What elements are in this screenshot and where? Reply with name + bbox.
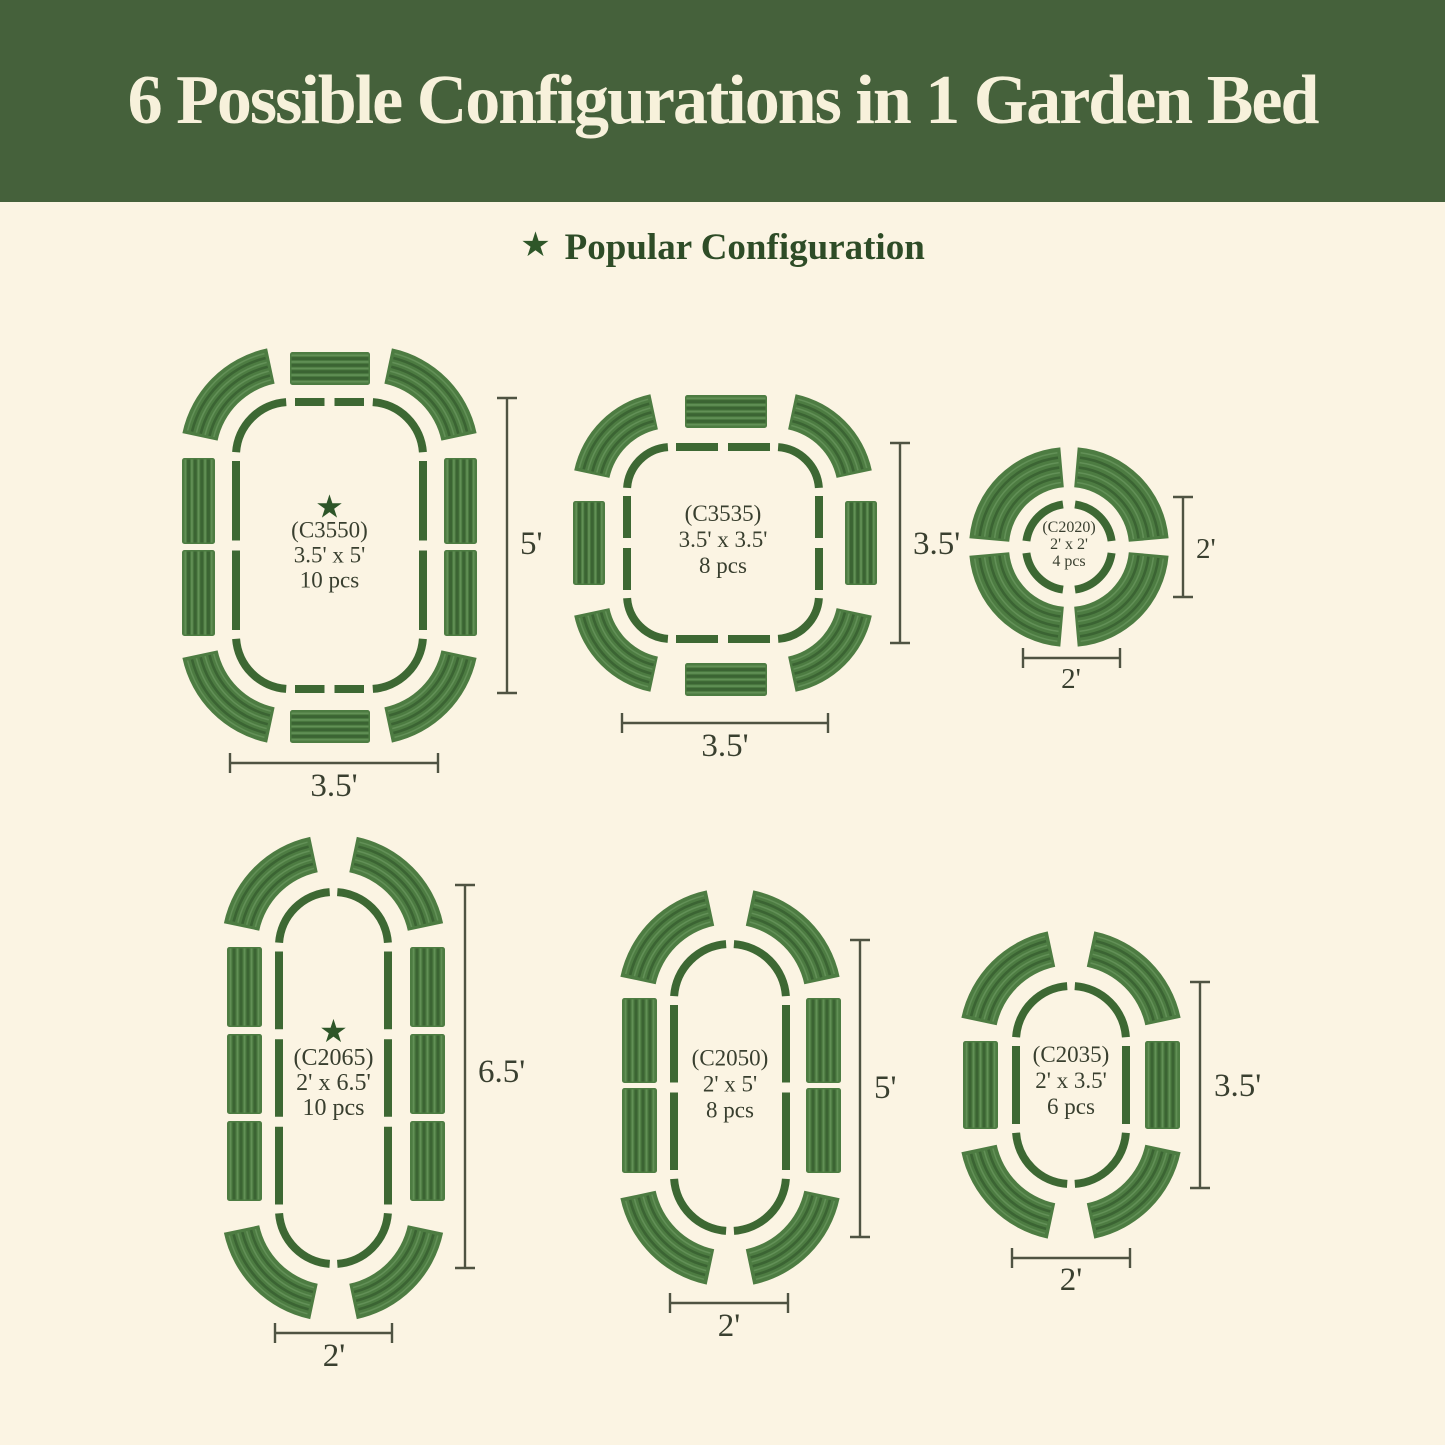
ribbed-panel-straight: [410, 1121, 445, 1201]
ribbed-panel-curved: [349, 1225, 443, 1319]
config-pieces: 4 pcs: [1052, 553, 1085, 570]
ribbed-panel-straight: [622, 998, 657, 1083]
config-c3535-diagram: 3.5'3.5'(C3535)3.5' x 3.5'8 pcs: [545, 350, 975, 805]
ribbed-panel-straight: [410, 947, 445, 1027]
ribbed-panel-straight: [410, 1034, 445, 1114]
dimension-line-vertical: [850, 940, 870, 1237]
ribbed-panel-curved: [224, 1225, 318, 1319]
ribbed-panel-curved: [224, 837, 318, 931]
ribbed-panel-straight: [444, 550, 477, 636]
config-c2035-diagram: 3.5'2'(C2035)2' x 3.5'6 pcs: [900, 900, 1275, 1325]
config-size: 2' x 6.5': [296, 1070, 371, 1096]
star-icon: ★: [520, 229, 550, 263]
config-code: (C3550): [291, 518, 368, 543]
config-c2050-diagram: 5'2'(C2050)2' x 5'8 pcs: [550, 860, 915, 1385]
config-size: 2' x 3.5': [1035, 1068, 1107, 1093]
ribbed-panel-straight: [1145, 1041, 1180, 1129]
popular-legend: ★ Popular Configuration: [0, 226, 1445, 270]
ribbed-panel-straight: [685, 395, 767, 428]
dimension-line-vertical: [1190, 982, 1210, 1188]
ribbed-panel-curved: [620, 890, 714, 984]
ribbed-panel-curved: [746, 1191, 840, 1285]
config-size: 2' x 5': [703, 1072, 757, 1097]
height-dimension-label: 2': [1196, 533, 1216, 565]
config-c2065-diagram: 6.5'2'★(C2065)2' x 6.5'10 pcs: [170, 830, 565, 1415]
ribbed-panel-curved: [961, 1145, 1055, 1239]
config-code: (C3535): [685, 501, 762, 526]
ribbed-panel-straight: [182, 458, 215, 544]
height-dimension-label: 6.5': [478, 1054, 525, 1090]
dimension-line-vertical: [455, 885, 475, 1268]
header-banner: 6 Possible Configurations in 1 Garden Be…: [0, 0, 1445, 202]
ribbed-panel-curved: [788, 608, 872, 692]
garden-bed-infographic: 6 Possible Configurations in 1 Garden Be…: [0, 0, 1445, 1445]
dimension-line-vertical: [497, 398, 517, 693]
dimension-line-vertical: [890, 443, 910, 643]
ribbed-panel-straight: [227, 1121, 262, 1201]
ribbed-panel-straight: [444, 458, 477, 544]
width-dimension-label: 2': [718, 1308, 740, 1344]
config-pieces: 10 pcs: [300, 568, 359, 593]
ribbed-panel-straight: [290, 352, 370, 385]
ribbed-panel-curved: [574, 394, 658, 478]
config-code: (C2065): [294, 1045, 374, 1071]
ribbed-panel-curved: [182, 348, 274, 440]
ribbed-panel-curved: [349, 837, 443, 931]
width-dimension-label: 3.5': [310, 768, 357, 804]
config-pieces: 6 pcs: [1047, 1094, 1095, 1119]
ribbed-panel-curved: [969, 552, 1063, 646]
ribbed-panel-straight: [806, 1088, 841, 1173]
ribbed-panel-straight: [963, 1041, 998, 1129]
width-dimension-label: 2': [1060, 1262, 1082, 1298]
ribbed-panel-curved: [1087, 1145, 1181, 1239]
ribbed-panel-straight: [573, 501, 605, 585]
config-pieces: 10 pcs: [303, 1095, 365, 1121]
ribbed-panel-straight: [806, 998, 841, 1083]
ribbed-panel-curved: [961, 931, 1055, 1025]
config-c3550-diagram: 5'3.5'★(C3550)3.5' x 5'10 pcs: [130, 322, 580, 847]
config-c2020-diagram: 2'2'(C2020)2' x 2'4 pcs: [940, 420, 1285, 750]
ribbed-panel-curved: [620, 1191, 714, 1285]
ribbed-panel-curved: [788, 394, 872, 478]
ribbed-panel-straight: [182, 550, 215, 636]
config-code: (C2020): [1042, 519, 1095, 536]
ribbed-panel-curved: [574, 608, 658, 692]
ribbed-panel-curved: [384, 348, 476, 440]
width-dimension-label: 3.5': [701, 728, 748, 764]
config-pieces: 8 pcs: [699, 553, 747, 578]
height-dimension-label: 5': [874, 1070, 896, 1106]
config-pieces: 8 pcs: [706, 1098, 754, 1123]
config-size: 2' x 2': [1050, 536, 1088, 553]
ribbed-panel-curved: [1087, 931, 1181, 1025]
config-code: (C2035): [1033, 1042, 1110, 1067]
ribbed-panel-curved: [1074, 552, 1168, 646]
ribbed-panel-straight: [685, 663, 767, 696]
ribbed-panel-curved: [182, 650, 274, 742]
ribbed-panel-straight: [290, 710, 370, 743]
ribbed-panel-straight: [622, 1088, 657, 1173]
dimension-line-vertical: [1173, 497, 1193, 597]
ribbed-panel-straight: [845, 501, 877, 585]
ribbed-panel-straight: [227, 947, 262, 1027]
ribbed-panel-curved: [384, 650, 476, 742]
config-code: (C2050): [692, 1046, 769, 1071]
ribbed-panel-straight: [227, 1034, 262, 1114]
popular-star-icon: ★: [319, 1013, 348, 1049]
config-size: 3.5' x 5': [294, 543, 366, 568]
popular-legend-label: Popular Configuration: [565, 226, 925, 270]
height-dimension-label: 3.5': [1214, 1068, 1261, 1104]
ribbed-panel-curved: [746, 890, 840, 984]
width-dimension-label: 2': [1061, 663, 1081, 695]
config-size: 3.5' x 3.5': [679, 527, 768, 552]
width-dimension-label: 2': [323, 1338, 345, 1374]
page-title: 6 Possible Configurations in 1 Garden Be…: [128, 61, 1318, 141]
height-dimension-label: 5': [520, 526, 542, 562]
